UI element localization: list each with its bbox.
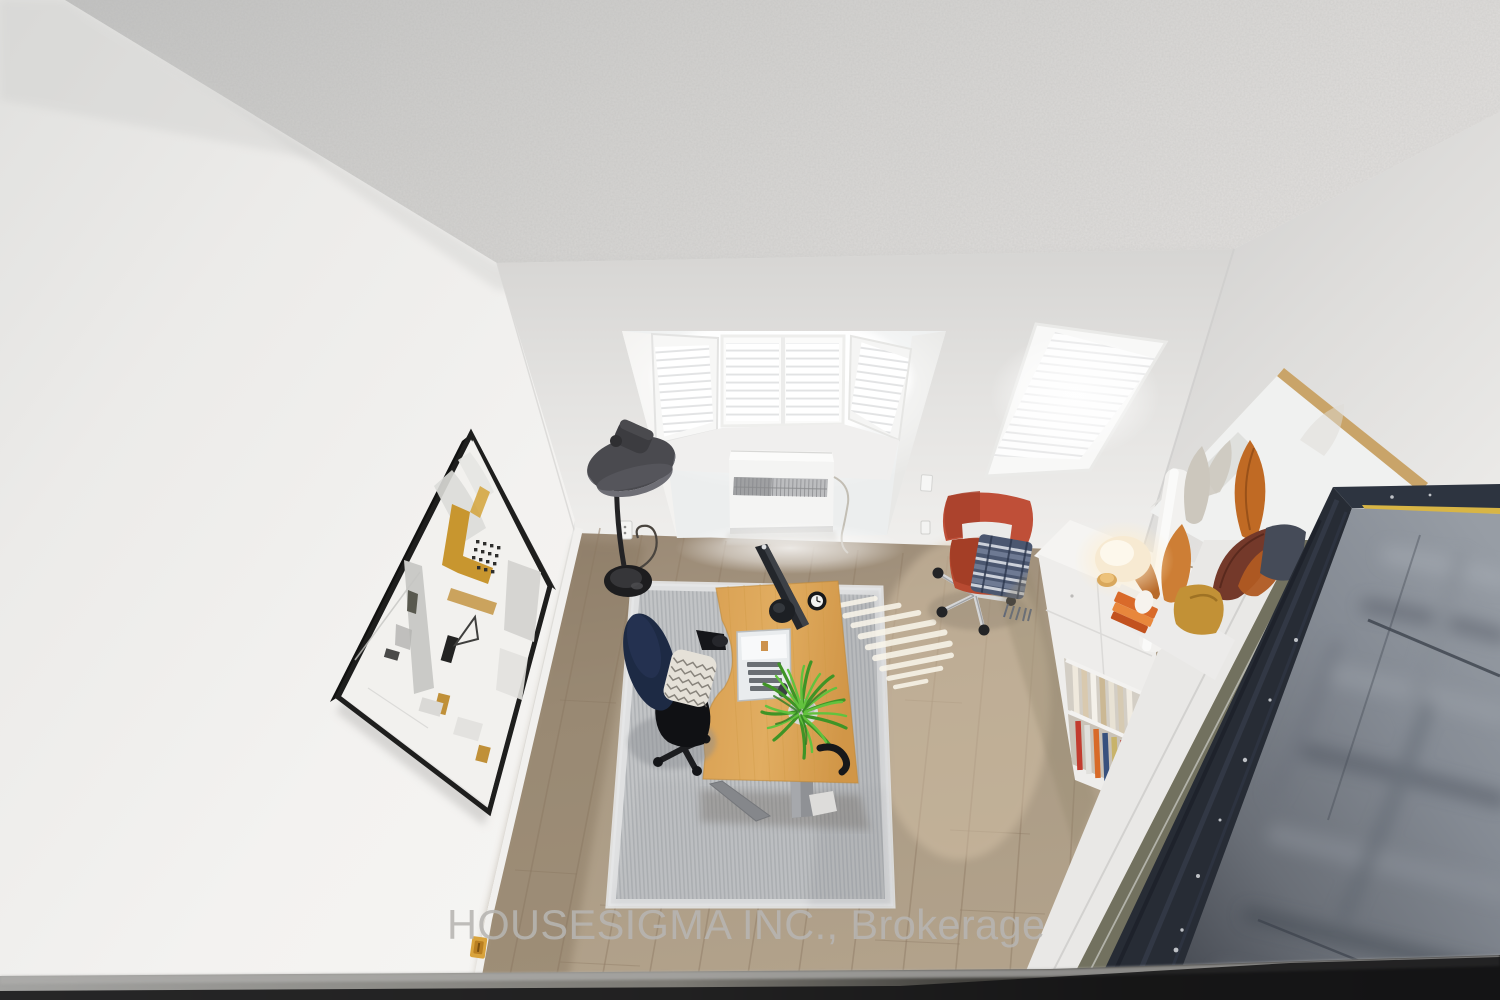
svg-text:HOUSESIGMA INC., Brokerage: HOUSESIGMA INC., Brokerage	[447, 901, 1046, 948]
